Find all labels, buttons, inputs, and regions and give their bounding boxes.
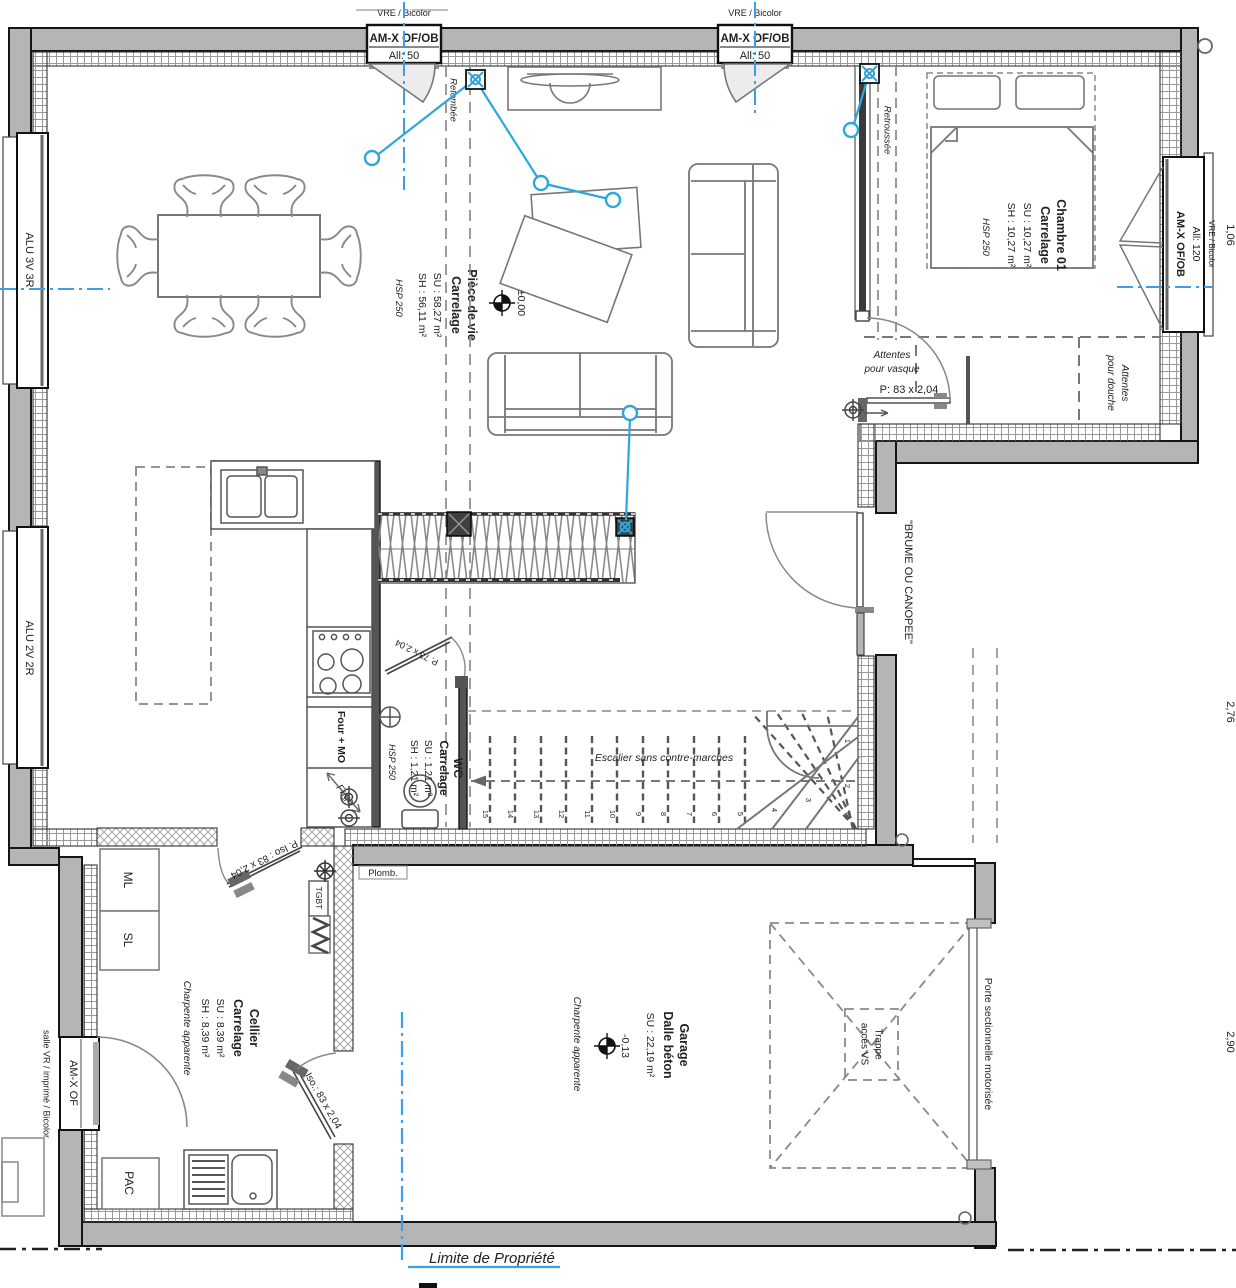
svg-text:SU : 8,39 m²: SU : 8,39 m² bbox=[214, 999, 226, 1058]
svg-text:ML: ML bbox=[121, 872, 135, 889]
svg-text:ALU 3V 3R: ALU 3V 3R bbox=[23, 232, 35, 287]
svg-text:salle VR / imprimé / Bicolor: salle VR / imprimé / Bicolor bbox=[42, 1030, 52, 1138]
svg-text:pour vasque: pour vasque bbox=[863, 364, 919, 375]
svg-text:PAC: PAC bbox=[122, 1171, 136, 1195]
svg-text:SH : 56,11 m²: SH : 56,11 m² bbox=[416, 273, 428, 337]
svg-text:Retroussée: Retroussée bbox=[881, 106, 892, 155]
svg-text:12: 12 bbox=[557, 810, 566, 818]
svg-text:1,06: 1,06 bbox=[1224, 224, 1236, 245]
svg-text:2: 2 bbox=[843, 784, 852, 788]
svg-text:15: 15 bbox=[481, 810, 490, 818]
svg-text:accès VS: accès VS bbox=[858, 1023, 869, 1066]
svg-text:WC: WC bbox=[451, 758, 465, 778]
svg-text:VRE / Bicolor: VRE / Bicolor bbox=[1207, 220, 1216, 268]
svg-text:P: 83 x 2,04: P: 83 x 2,04 bbox=[880, 384, 939, 396]
svg-text:13: 13 bbox=[532, 810, 541, 818]
svg-text:HSP 250: HSP 250 bbox=[980, 218, 991, 256]
svg-text:-0,13: -0,13 bbox=[619, 1034, 631, 1058]
svg-text:6: 6 bbox=[710, 812, 719, 816]
svg-text:Pièce de vie: Pièce de vie bbox=[465, 269, 479, 341]
svg-text:1: 1 bbox=[843, 739, 852, 743]
svg-text:pour douche: pour douche bbox=[1105, 354, 1116, 411]
svg-text:SH : 10,27 m²: SH : 10,27 m² bbox=[1005, 203, 1017, 268]
svg-text:AM-X OF/OB: AM-X OF/OB bbox=[1174, 211, 1186, 277]
svg-text:Escalier sans contre-marches: Escalier sans contre-marches bbox=[595, 752, 734, 764]
svg-text:SU : 10,27 m²: SU : 10,27 m² bbox=[1021, 203, 1033, 268]
svg-text:Cellier: Cellier bbox=[247, 1009, 261, 1047]
svg-text:HSP 250: HSP 250 bbox=[393, 279, 404, 317]
svg-text:8: 8 bbox=[659, 812, 668, 816]
svg-text:4: 4 bbox=[770, 808, 779, 812]
svg-text:SH : 1,21 m²: SH : 1,21 m² bbox=[408, 740, 419, 797]
svg-text:Carrelage: Carrelage bbox=[1038, 206, 1052, 264]
svg-text:SU : 1,21 m²: SU : 1,21 m² bbox=[422, 740, 433, 797]
svg-text:Charpente apparente: Charpente apparente bbox=[571, 997, 582, 1092]
svg-text:Plomb.: Plomb. bbox=[368, 868, 398, 879]
svg-text:Carrelage: Carrelage bbox=[231, 999, 245, 1057]
svg-text:TGBT: TGBT bbox=[314, 887, 324, 910]
svg-text:Charpente apparente: Charpente apparente bbox=[181, 981, 192, 1076]
svg-text:SU : 22,19 m²: SU : 22,19 m² bbox=[644, 1013, 656, 1078]
svg-text:"BRUME OU CANOPEE": "BRUME OU CANOPEE" bbox=[902, 520, 914, 644]
svg-text:SL: SL bbox=[121, 933, 135, 948]
svg-text:14: 14 bbox=[506, 810, 515, 818]
svg-text:Attentes: Attentes bbox=[873, 350, 911, 361]
svg-text:SU : 58,27 m²: SU : 58,27 m² bbox=[431, 273, 443, 338]
svg-text:2,90: 2,90 bbox=[1224, 1031, 1236, 1052]
svg-text:7: 7 bbox=[685, 812, 694, 816]
svg-text:Trappe: Trappe bbox=[872, 1028, 883, 1060]
svg-text:ALU 2V 2R: ALU 2V 2R bbox=[23, 620, 35, 675]
svg-text:Porte sectionnelle motorisée: Porte sectionnelle motorisée bbox=[982, 978, 994, 1111]
svg-text:9: 9 bbox=[634, 812, 643, 816]
svg-text:11: 11 bbox=[583, 810, 592, 818]
svg-text:Carrelage: Carrelage bbox=[437, 740, 451, 796]
svg-text:2,76: 2,76 bbox=[1224, 701, 1236, 722]
svg-text:SH : 8,39 m²: SH : 8,39 m² bbox=[199, 999, 211, 1058]
svg-text:5: 5 bbox=[736, 812, 745, 816]
svg-text:AM-X OF: AM-X OF bbox=[67, 1060, 79, 1106]
svg-text:Four + MO: Four + MO bbox=[335, 711, 347, 763]
svg-text:Limite de Propriété: Limite de Propriété bbox=[429, 1250, 555, 1267]
svg-text:HSP 250: HSP 250 bbox=[387, 744, 397, 780]
svg-text:All: 120: All: 120 bbox=[1190, 226, 1202, 261]
svg-text:Chambre 01: Chambre 01 bbox=[1054, 199, 1068, 271]
svg-text:Dalle béton: Dalle béton bbox=[661, 1011, 675, 1078]
svg-text:10: 10 bbox=[608, 810, 617, 818]
svg-text:±0,00: ±0,00 bbox=[515, 290, 527, 316]
svg-text:Garage: Garage bbox=[677, 1023, 691, 1066]
svg-text:Carrelage: Carrelage bbox=[449, 276, 463, 334]
svg-text:3: 3 bbox=[804, 798, 813, 802]
svg-text:Attentes: Attentes bbox=[1119, 364, 1130, 402]
